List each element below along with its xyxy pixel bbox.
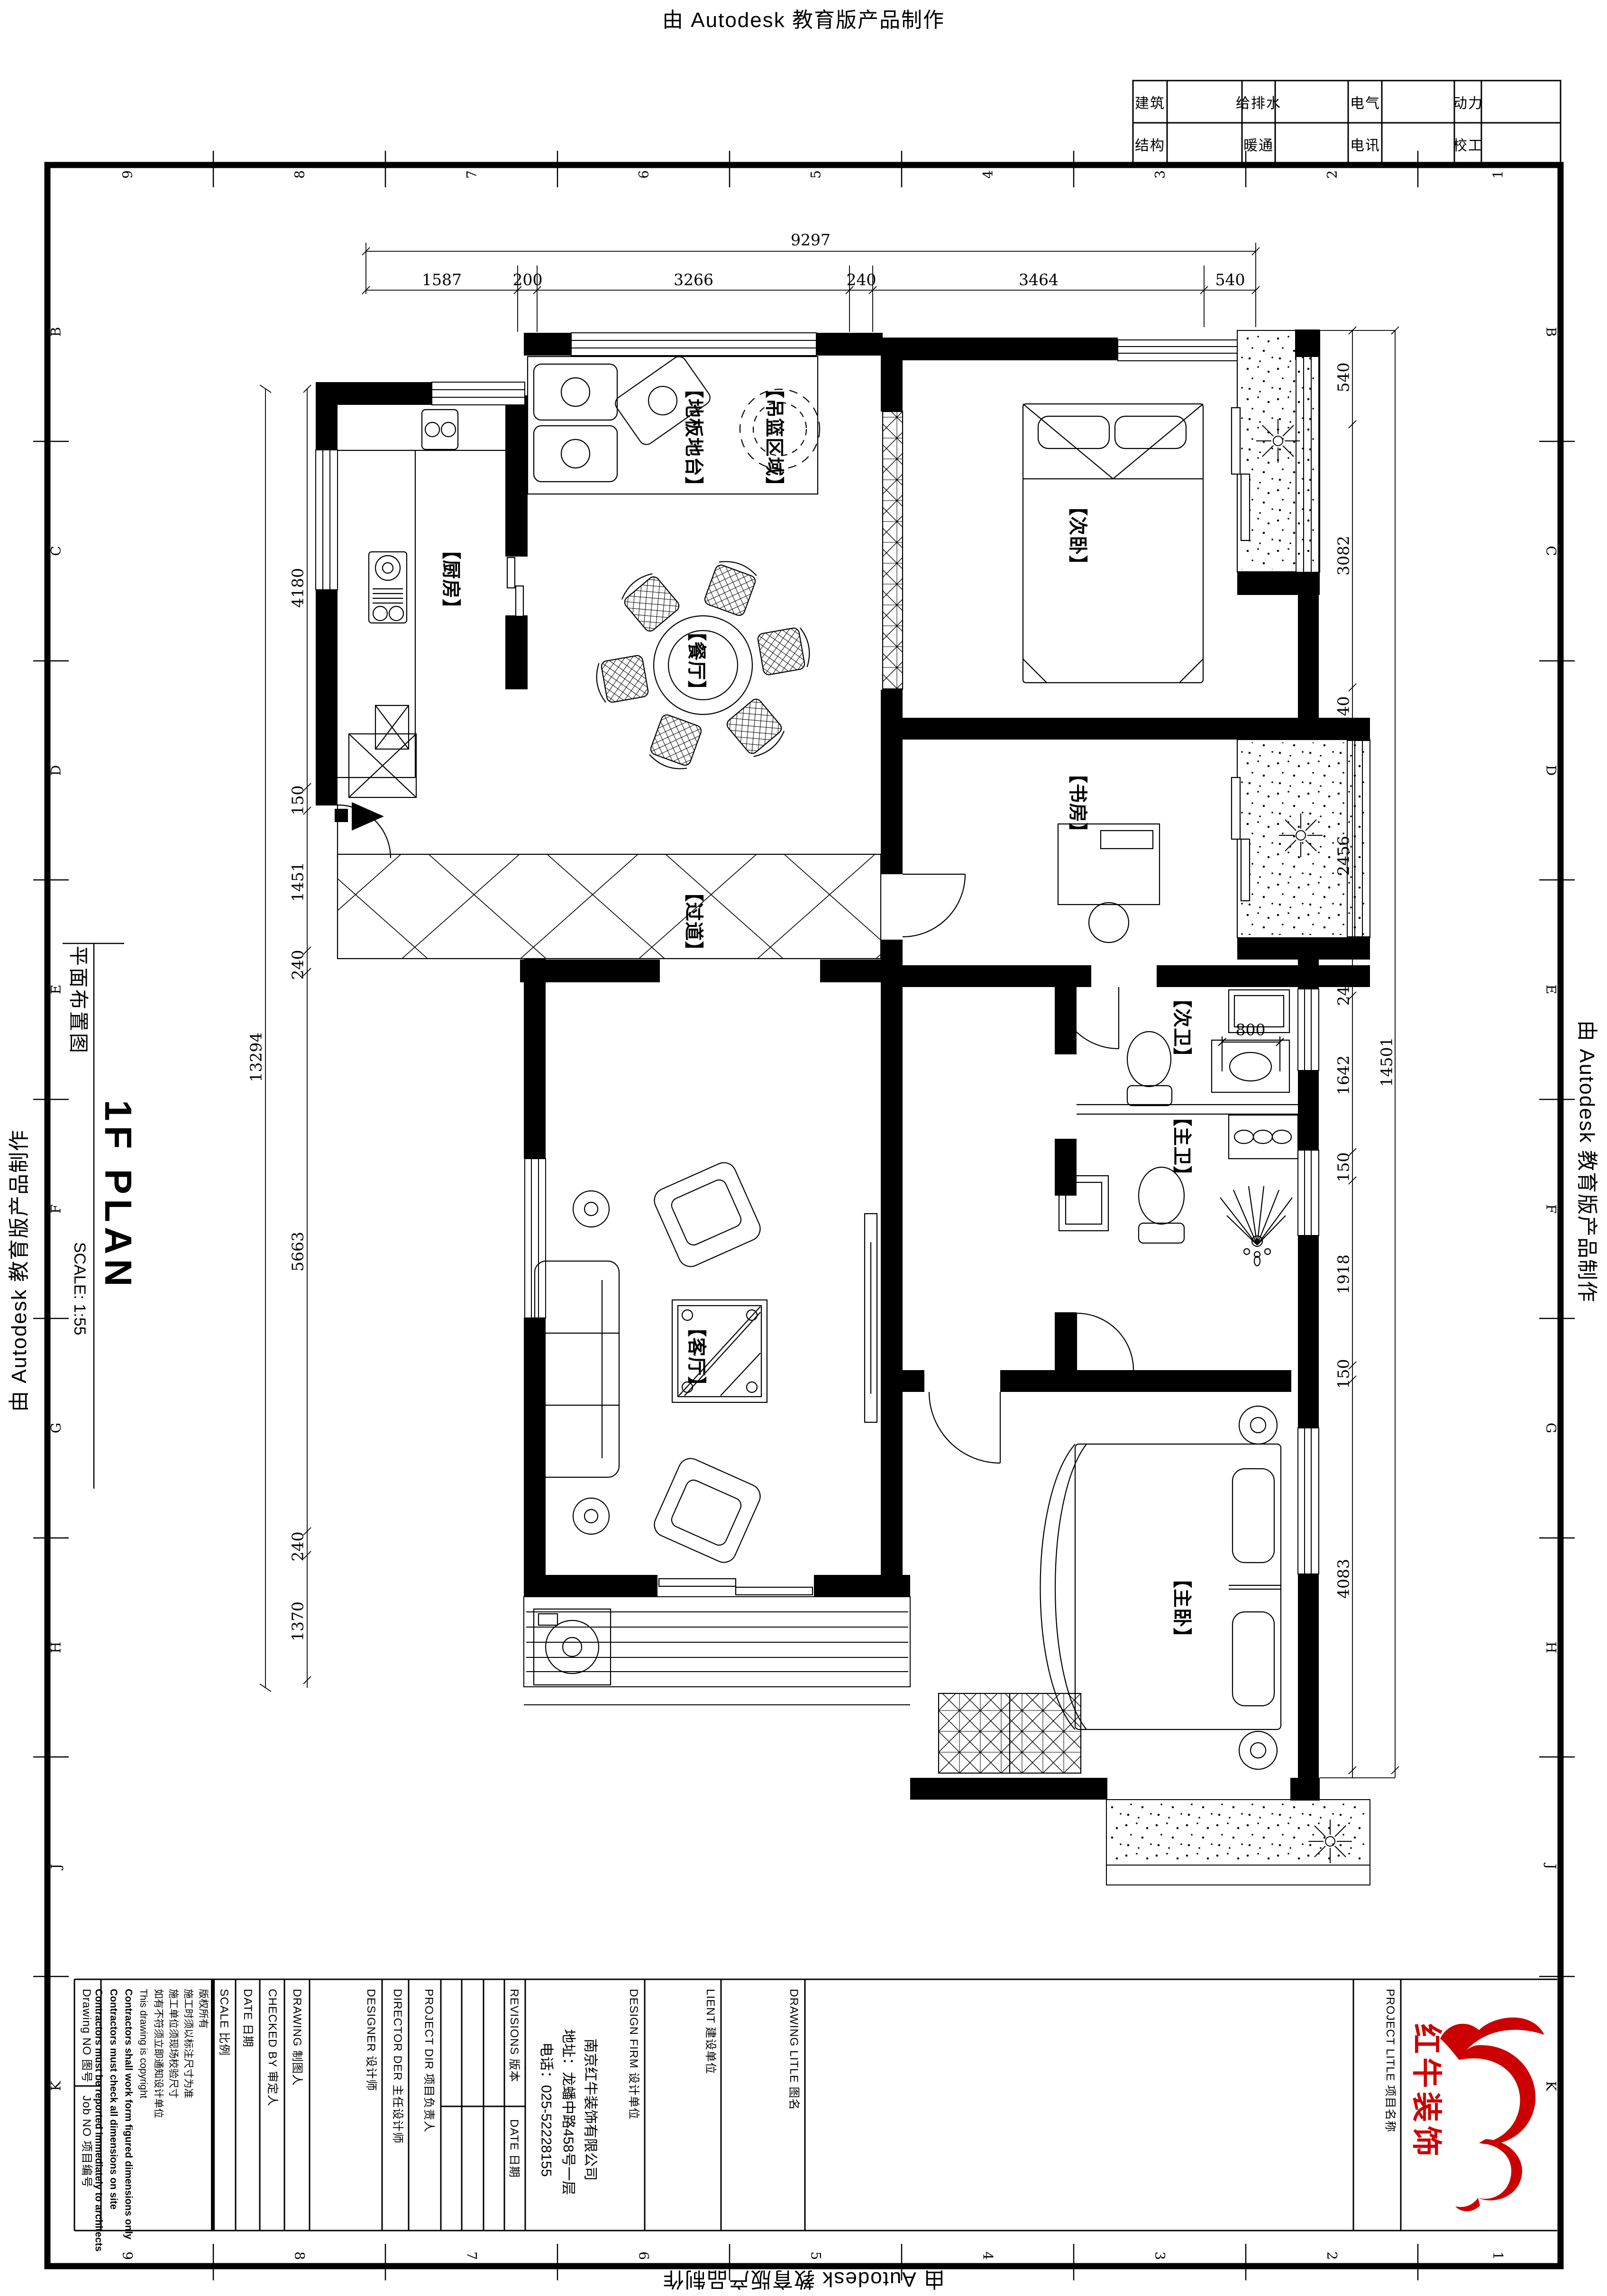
company-name: 南京红牛装饰有限公司 [579,2029,601,2190]
grid-row-label: K [48,2081,64,2091]
tb-revisions: REVISIONS 版本 [507,1989,524,2082]
grid-row-label: F [1543,1204,1559,1213]
grid-col-label: 5 [808,170,824,179]
tb-company-info: 南京红牛装饰有限公司 地址：龙蟠中路458号一层 电话：025-52228155 [535,2029,601,2190]
tb-rev-date: DATE 日期 [507,2119,524,2178]
dim-right: 3082 [1334,536,1353,576]
sheet-frame [33,151,1575,2280]
dimension-lines [260,243,1399,1778]
room-label-bath1: 【主卫】 [1170,1107,1197,1185]
room-label-study: 【书房】 [1066,764,1093,842]
room-label-platform: 【地板地台】 [682,379,709,496]
grid-col-label: 2 [1324,170,1340,179]
balconies [524,330,1370,1885]
grid-row-label: G [1543,1423,1559,1433]
tb-designer: DESIGNER 设计师 [364,1989,381,2091]
dim-left-total: 13294 [247,1033,265,1082]
room-label-bed1: 【主卧】 [1170,1569,1197,1647]
tb-client: LIENT 建设单位 [703,1989,720,2074]
room-label-bath2: 【次卫】 [1170,989,1197,1067]
dim-right: 240 [1334,696,1353,726]
grid-col-label: 6 [636,2251,652,2260]
grid-row-label: C [1543,546,1559,556]
stamp-structure: 结构 [1135,134,1165,155]
dim-left: 1451 [289,862,307,902]
dim-right: 2456 [1334,836,1353,876]
dim-inner-800: 800 [1236,1021,1266,1039]
grid-col-label: 9 [120,170,136,179]
dim-top: 540 [1215,271,1245,289]
dim-right: 1918 [1334,1254,1353,1294]
company-phone: 电话：025-52228155 [535,2029,557,2190]
grid-col-label: 7 [464,170,480,179]
grid-row-label: B [1543,327,1559,337]
dim-right: 150 [1334,1359,1353,1389]
watermark-right: 由 Autodesk 教育版产品制作 [1574,1020,1604,1303]
logo-text: 红牛装饰 [1407,2023,1451,2160]
grid-col-label: 8 [292,170,308,179]
dim-top: 200 [513,271,543,289]
grid-row-label: G [48,1423,64,1433]
tb-drawing-title: DRAWING LITLE 图名 [787,1989,803,2110]
tb-drawing: DRAWING 制图人 [290,1989,307,2086]
tb-director: DIRECTOR DER 主任设计师 [391,1989,407,2144]
grid-row-label: H [48,1642,64,1653]
stamp-proof: 校工 [1453,134,1483,155]
kitchen-fixtures [338,410,523,797]
room-label-living: 【客厅】 [685,1318,712,1396]
company-address: 地址：龙蟠中路458号一层 [557,2029,579,2190]
plan-linework [0,0,1607,2296]
grid-row-label: D [1543,765,1559,776]
watermark-bottom: 由 Autodesk 教育版产品制作 [662,2266,945,2296]
dim-right: 540 [1334,363,1353,393]
grid-row-label: F [48,1204,64,1213]
dim-left: 150 [289,786,307,815]
room-label-kitchen: 【厨房】 [439,540,466,618]
grid-col-label: 1 [1490,170,1506,179]
dim-right: 1642 [1334,1055,1353,1095]
bull-logo-icon [1440,2017,1544,2211]
stamp-plumbing: 给排水 [1236,91,1281,112]
dim-left: 5663 [289,1232,307,1271]
stamp-telecom: 电讯 [1350,134,1380,155]
grid-row-label: E [48,985,64,994]
grid-row-label: C [48,546,64,556]
grid-col-label: 8 [292,2251,308,2260]
dim-top-total: 9297 [791,231,831,249]
tb-copyright: 版权所有 施工时须以标注尺寸为准 施工单位须现场校验尺寸 如有不符须立即通知设计… [102,1989,210,2216]
dim-top: 3464 [1019,271,1059,289]
drawing-sheet: 由 Autodesk 教育版产品制作 由 Autodesk 教育版产品制作 由 … [0,0,1607,2296]
dim-left: 240 [289,1532,307,1562]
grid-col-label: 1 [1490,2251,1506,2260]
dim-left: 240 [289,950,307,980]
dim-right: 240 [1334,976,1353,1006]
room-label-bed2: 【次卧】 [1066,497,1093,575]
tb-checked: CHECKED BY 审定人 [265,1989,282,2106]
stamp-table [1133,81,1561,165]
grid-col-label: 2 [1324,2251,1340,2260]
stamp-hvac: 暖通 [1243,134,1274,155]
grid-row-label: B [48,327,64,337]
grid-col-label: 6 [636,170,652,179]
watermark-left: 由 Autodesk 教育版产品制作 [2,1129,32,1412]
dim-top: 3266 [674,271,713,289]
grid-row-label: J [48,1864,64,1869]
dim-top: 240 [847,271,877,289]
dim-left: 1370 [289,1601,307,1641]
grid-row-label: D [48,765,64,776]
tb-date: DATE 日期 [241,1989,257,2048]
room-label-hall: 【过道】 [682,883,709,960]
tb-scale: SCALE 比例 [217,1989,234,2056]
grid-col-label: 9 [120,2251,136,2260]
grid-col-label: 5 [808,2251,824,2260]
tb-project-dir: PROJECT DIR 项目负责人 [422,1989,438,2132]
watermark-top: 由 Autodesk 教育版产品制作 [662,3,945,33]
tb-design-firm: DESIGN FIRM 设计单位 [627,1989,643,2120]
grid-row-label: K [1543,2081,1559,2091]
dim-top: 1587 [422,271,462,289]
grid-row-label: E [1543,985,1559,994]
plan-subtitle: 平面布置图 [65,946,94,1055]
dim-right: 4083 [1334,1559,1353,1599]
grid-col-label: 4 [980,2251,996,2260]
grid-col-label: 4 [980,170,996,179]
dim-right-total: 14501 [1378,1037,1396,1087]
room-label-dining: 【餐厅】 [685,622,712,700]
dim-left: 4180 [289,568,307,608]
grid-col-label: 7 [464,2251,480,2260]
plan-title: 1F PLAN [96,1100,140,1291]
grid-col-label: 3 [1152,2251,1168,2260]
living-fixtures [534,1159,877,1685]
plan-scale: SCALE: 1:55 [70,1242,89,1336]
tb-project-title: PROJECT LITLE 项目名称 [1383,1989,1400,2132]
dim-right: 150 [1334,1153,1353,1182]
grid-row-label: J [1543,1864,1559,1869]
stamp-power: 动力 [1453,91,1483,112]
stamp-arch: 建筑 [1135,91,1165,112]
grid-row-label: H [1543,1642,1559,1653]
grid-col-label: 3 [1152,170,1168,179]
stamp-electrical: 电气 [1350,91,1380,112]
room-label-hanging: 【吊篮区域】 [762,379,790,496]
